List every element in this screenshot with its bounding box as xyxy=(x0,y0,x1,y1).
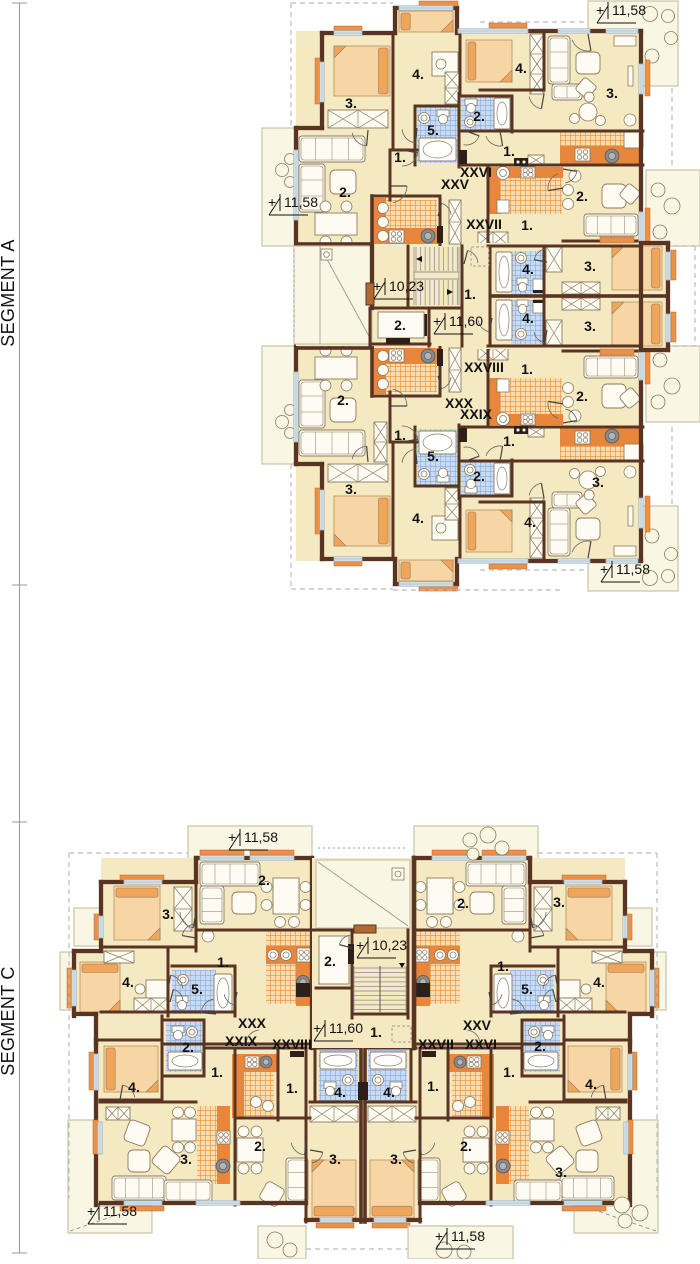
svg-text:4.: 4. xyxy=(383,1084,395,1100)
svg-text:4.: 4. xyxy=(515,60,527,76)
svg-text:4.: 4. xyxy=(522,310,534,326)
svg-text:11,58: 11,58 xyxy=(244,829,278,845)
svg-text:2.: 2. xyxy=(576,188,588,204)
svg-text:2.: 2. xyxy=(460,1138,472,1154)
svg-text:XXVIII: XXVIII xyxy=(272,1036,312,1052)
svg-text:3.: 3. xyxy=(390,1151,402,1167)
svg-text:1.: 1. xyxy=(427,1078,439,1094)
svg-text:XXVII: XXVII xyxy=(466,216,502,232)
svg-text:4.: 4. xyxy=(334,1084,346,1100)
svg-text:1.: 1. xyxy=(217,954,229,970)
svg-text:+: + xyxy=(313,1020,321,1036)
svg-text:11,60: 11,60 xyxy=(449,313,483,329)
svg-text:2.: 2. xyxy=(394,317,406,333)
svg-text:2.: 2. xyxy=(457,895,469,911)
svg-text:+: + xyxy=(228,829,236,845)
svg-text:+: + xyxy=(600,561,608,577)
svg-text:5.: 5. xyxy=(427,122,439,138)
svg-text:+: + xyxy=(356,937,364,953)
svg-text:1.: 1. xyxy=(394,149,406,165)
svg-text:3.: 3. xyxy=(606,85,618,101)
svg-text:4.: 4. xyxy=(128,1079,140,1095)
svg-text:+: + xyxy=(87,1203,95,1219)
svg-text:3.: 3. xyxy=(345,481,357,497)
svg-text:XXV: XXV xyxy=(463,1017,492,1033)
svg-text:1.: 1. xyxy=(503,1064,515,1080)
svg-text:XXX: XXX xyxy=(238,1015,267,1031)
svg-text:3.: 3. xyxy=(345,95,357,111)
svg-text:4.: 4. xyxy=(412,66,424,82)
svg-text:10,23: 10,23 xyxy=(372,937,407,953)
svg-text:XXVI: XXVI xyxy=(465,1036,497,1052)
svg-text:4.: 4. xyxy=(593,974,605,990)
svg-text:11,60: 11,60 xyxy=(329,1020,363,1036)
svg-text:XXV: XXV xyxy=(441,176,470,192)
svg-text:2.: 2. xyxy=(254,1138,266,1154)
svg-text:3.: 3. xyxy=(555,1164,567,1180)
svg-text:1.: 1. xyxy=(286,1080,298,1096)
svg-text:2.: 2. xyxy=(473,468,485,484)
svg-text:SEGMENT C: SEGMENT C xyxy=(0,966,18,1075)
svg-text:3.: 3. xyxy=(180,1151,192,1167)
svg-text:2.: 2. xyxy=(337,392,349,408)
svg-text:XXVIII: XXVIII xyxy=(464,359,504,375)
svg-text:2.: 2. xyxy=(576,388,588,404)
svg-text:3.: 3. xyxy=(584,318,596,334)
svg-text:1.: 1. xyxy=(370,1024,382,1040)
svg-text:4.: 4. xyxy=(524,514,536,530)
svg-text:XXVII: XXVII xyxy=(418,1036,454,1052)
svg-text:1.: 1. xyxy=(521,217,533,233)
svg-text:2.: 2. xyxy=(534,1038,546,1054)
svg-text:11,58: 11,58 xyxy=(616,561,650,577)
svg-text:2.: 2. xyxy=(324,953,336,969)
svg-text:3.: 3. xyxy=(553,894,565,910)
svg-text:XXIX: XXIX xyxy=(460,406,493,422)
svg-text:+: + xyxy=(268,194,276,210)
svg-text:10,23: 10,23 xyxy=(389,278,424,294)
svg-text:2.: 2. xyxy=(339,184,351,200)
svg-text:SEGMENT A: SEGMENT A xyxy=(0,239,18,346)
svg-text:5.: 5. xyxy=(191,981,203,997)
svg-text:1.: 1. xyxy=(497,958,509,974)
svg-text:4.: 4. xyxy=(412,510,424,526)
svg-text:2.: 2. xyxy=(258,872,270,888)
svg-text:+: + xyxy=(435,1228,443,1244)
svg-text:2.: 2. xyxy=(473,108,485,124)
svg-text:1.: 1. xyxy=(211,1064,223,1080)
svg-text:4.: 4. xyxy=(522,261,534,277)
svg-text:+: + xyxy=(433,313,441,329)
svg-text:11,58: 11,58 xyxy=(612,2,646,18)
svg-text:XXIX: XXIX xyxy=(225,1033,258,1049)
svg-text:5.: 5. xyxy=(427,448,439,464)
svg-text:11,58: 11,58 xyxy=(451,1228,485,1244)
svg-text:1.: 1. xyxy=(464,286,476,302)
svg-text:4.: 4. xyxy=(122,974,134,990)
svg-text:+: + xyxy=(596,2,604,18)
svg-text:+: + xyxy=(373,278,381,294)
svg-text:2.: 2. xyxy=(182,1039,194,1055)
svg-text:3.: 3. xyxy=(592,474,604,490)
svg-text:3.: 3. xyxy=(584,258,596,274)
svg-text:1.: 1. xyxy=(503,143,515,159)
svg-text:3.: 3. xyxy=(329,1151,341,1167)
svg-text:1.: 1. xyxy=(503,433,515,449)
svg-text:11,58: 11,58 xyxy=(284,194,318,210)
svg-text:3.: 3. xyxy=(162,906,174,922)
svg-text:1.: 1. xyxy=(521,361,533,377)
svg-text:5.: 5. xyxy=(521,981,533,997)
svg-text:4.: 4. xyxy=(585,1076,597,1092)
svg-text:11,58: 11,58 xyxy=(103,1203,137,1219)
svg-text:1.: 1. xyxy=(394,427,406,443)
